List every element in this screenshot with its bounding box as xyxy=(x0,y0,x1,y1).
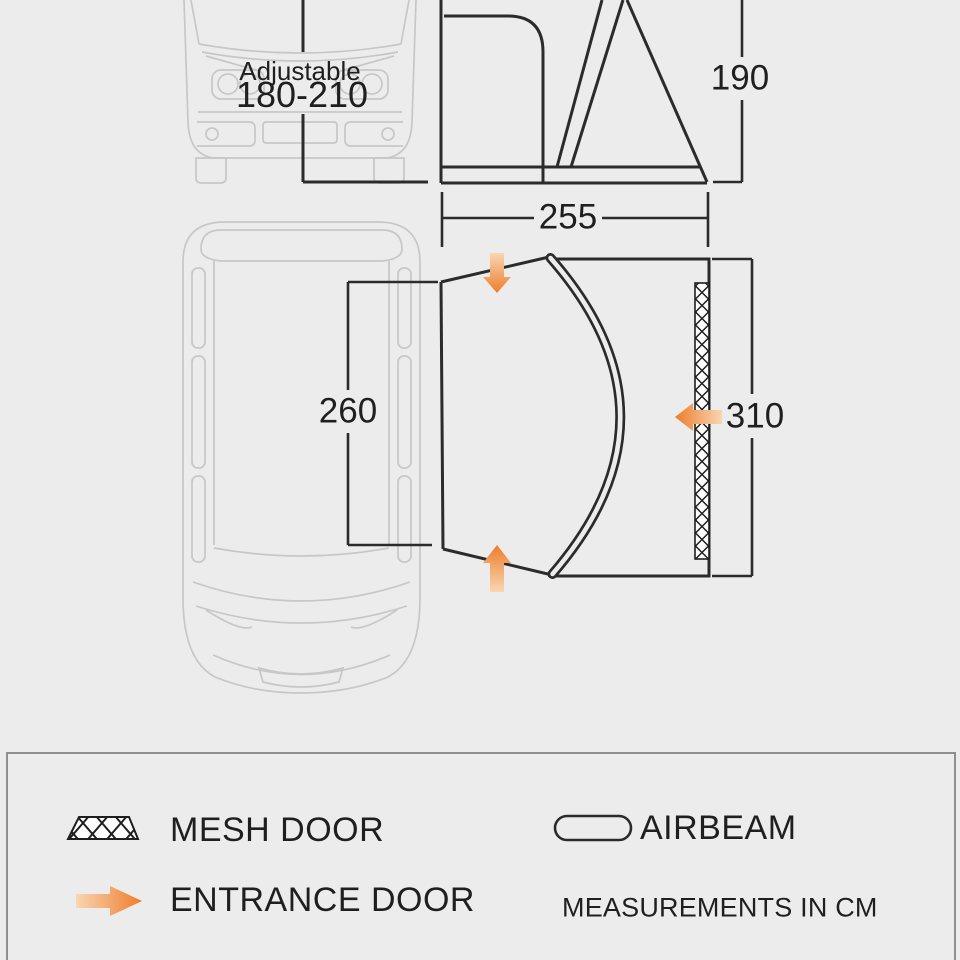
dimension-310-value: 310 xyxy=(726,399,784,434)
legend-airbeam-label: AIRBEAM xyxy=(640,811,797,845)
dimension-255-value: 255 xyxy=(539,200,597,235)
awning-dimension-diagram: Adjustable 180-210 190 255 260 310 MESH … xyxy=(0,0,960,960)
dimension-190-value: 190 xyxy=(711,61,769,96)
legend-box xyxy=(6,752,956,960)
awning-top-view xyxy=(441,257,709,576)
entrance-arrow-down-icon xyxy=(483,253,511,293)
legend-measurements-note: MEASUREMENTS IN CM xyxy=(562,895,878,922)
awning-side-view xyxy=(441,0,707,183)
entrance-door-icon xyxy=(72,884,148,918)
dimension-260-value: 260 xyxy=(319,394,377,429)
adjustable-range-value: 180-210 xyxy=(236,77,368,113)
airbeam-icon xyxy=(552,812,636,844)
legend-mesh-door-label: MESH DOOR xyxy=(170,813,384,847)
entrance-arrow-up-icon xyxy=(483,545,511,592)
mesh-door-icon xyxy=(64,812,144,844)
legend-entrance-door-label: ENTRANCE DOOR xyxy=(170,883,475,917)
